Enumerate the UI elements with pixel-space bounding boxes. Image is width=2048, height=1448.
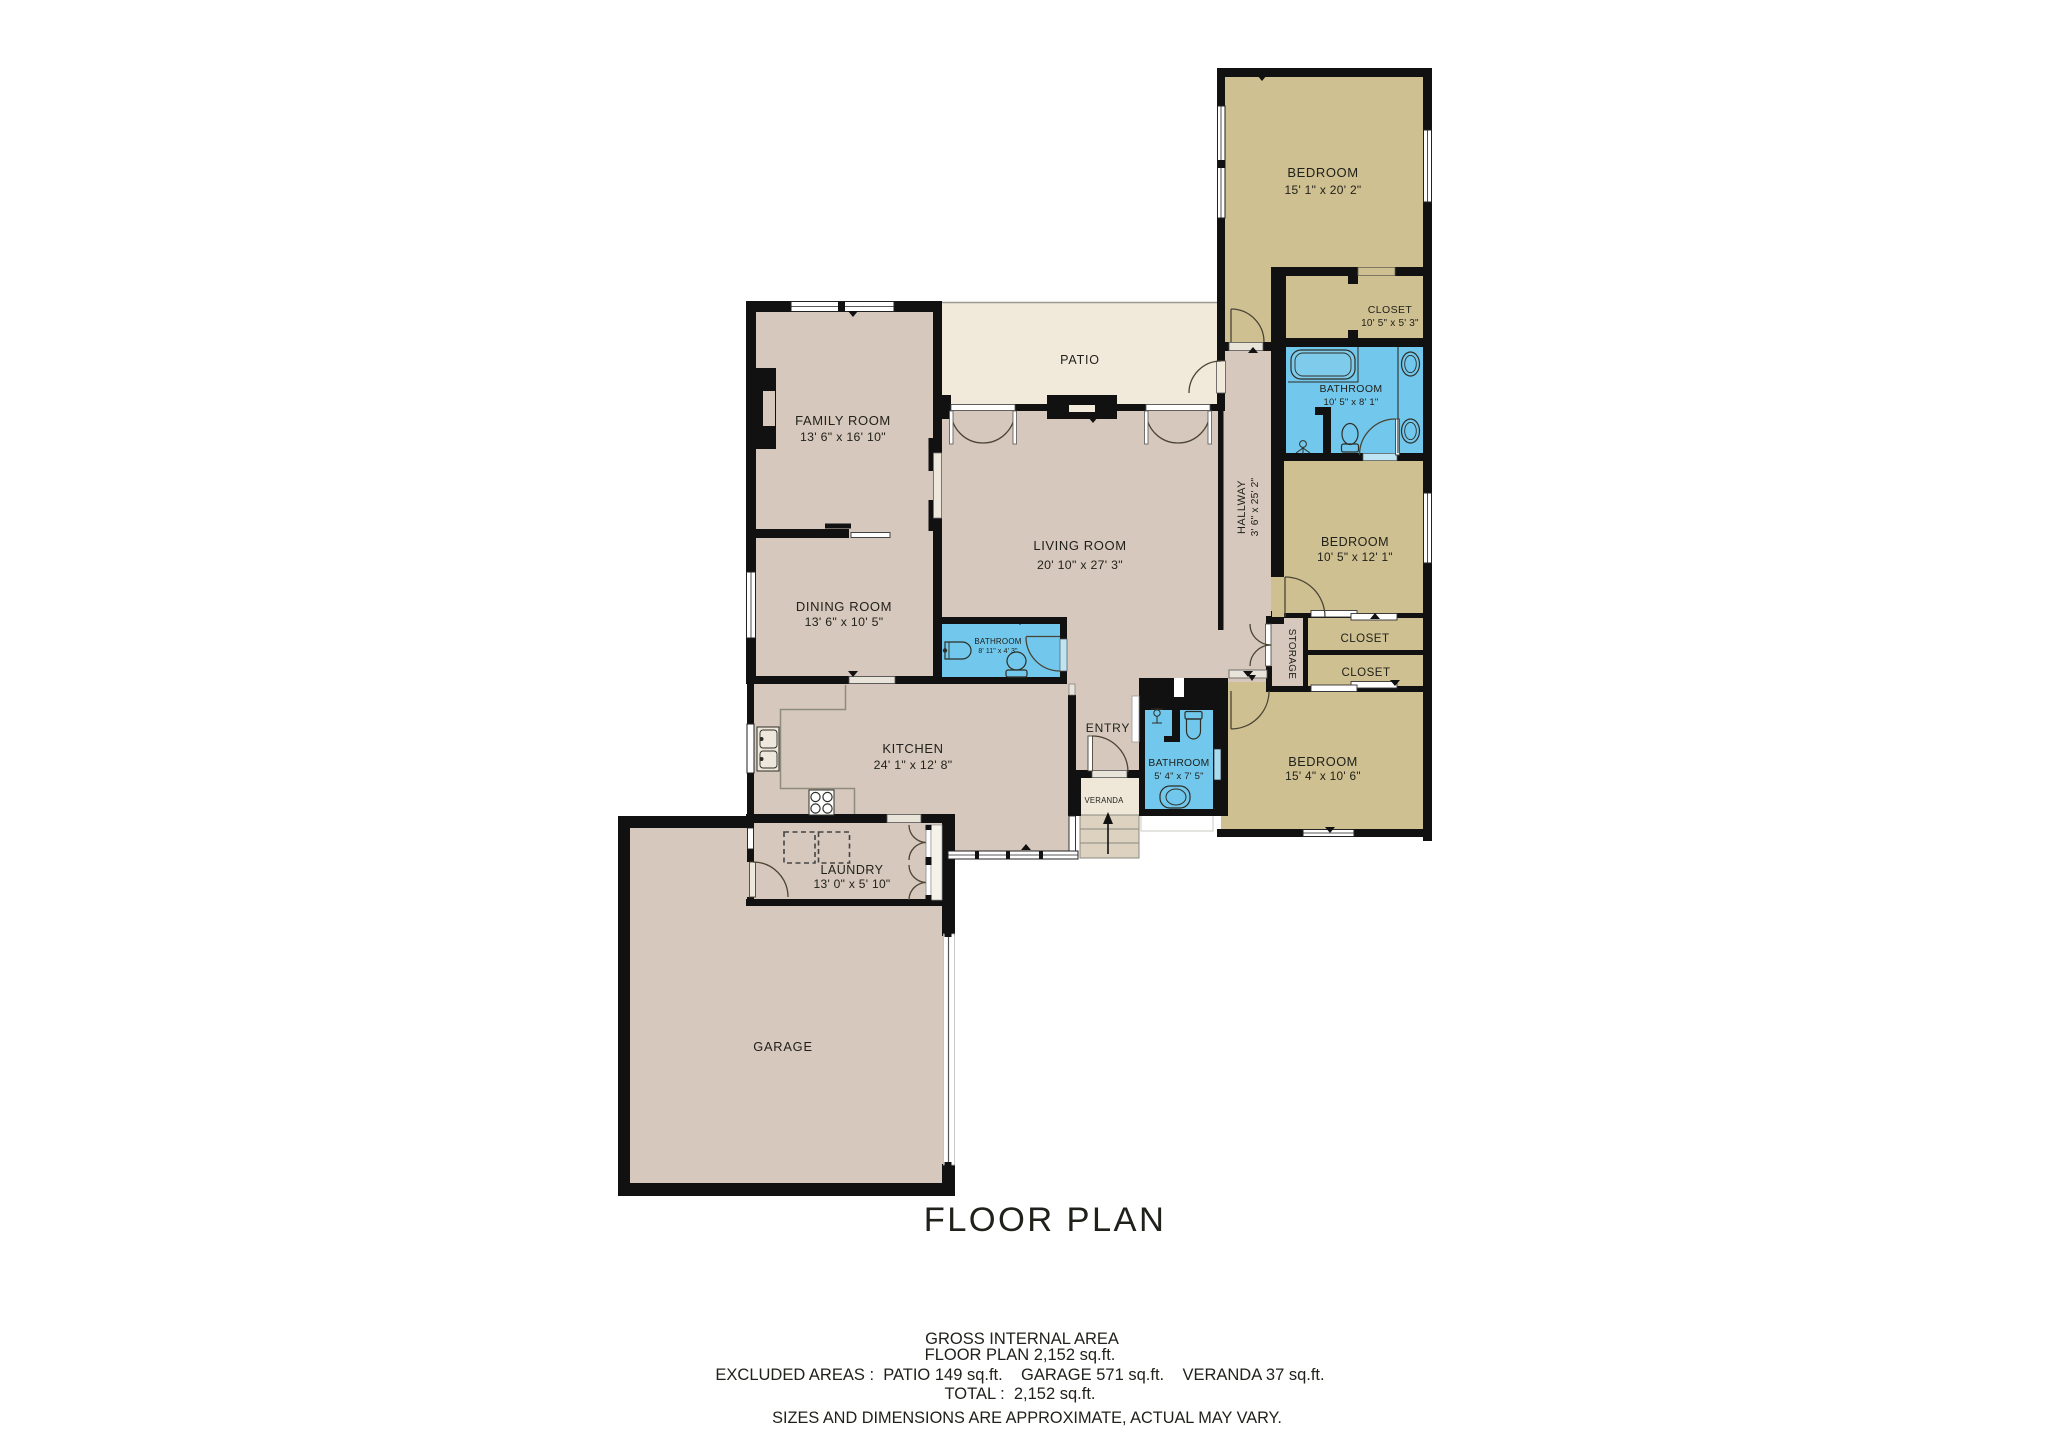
- svg-text:SIZES AND DIMENSIONS ARE APPRO: SIZES AND DIMENSIONS ARE APPROXIMATE, AC…: [772, 1409, 1282, 1427]
- svg-text:CLOSET: CLOSET: [1341, 667, 1390, 679]
- svg-text:13' 6" x 10' 5": 13' 6" x 10' 5": [805, 615, 884, 629]
- svg-text:BATHROOM: BATHROOM: [1319, 383, 1382, 395]
- svg-text:BEDROOM: BEDROOM: [1288, 754, 1358, 769]
- svg-text:GARAGE: GARAGE: [753, 1039, 813, 1054]
- svg-text:10' 5" x 8' 1": 10' 5" x 8' 1": [1324, 397, 1379, 408]
- svg-text:DINING ROOM: DINING ROOM: [796, 599, 892, 614]
- svg-text:FLOOR PLAN: FLOOR PLAN: [924, 1201, 1167, 1239]
- svg-text:13' 0" x 5' 10": 13' 0" x 5' 10": [814, 877, 891, 891]
- svg-text:VERANDA: VERANDA: [1084, 796, 1124, 805]
- svg-text:ENTRY: ENTRY: [1086, 721, 1130, 735]
- svg-text:TOTAL : 2,152 sq.ft.: TOTAL : 2,152 sq.ft.: [944, 1385, 1095, 1403]
- svg-text:BEDROOM: BEDROOM: [1321, 535, 1389, 549]
- svg-text:BATHROOM: BATHROOM: [1148, 758, 1209, 769]
- svg-text:HALLWAY: HALLWAY: [1236, 480, 1248, 534]
- svg-text:15' 4" x 10' 6": 15' 4" x 10' 6": [1285, 769, 1361, 783]
- svg-text:3' 6" x 25' 2": 3' 6" x 25' 2": [1250, 477, 1261, 536]
- svg-text:15' 1" x 20' 2": 15' 1" x 20' 2": [1285, 183, 1362, 197]
- svg-text:5' 4" x 7' 5": 5' 4" x 7' 5": [1154, 771, 1203, 782]
- svg-text:CLOSET: CLOSET: [1368, 304, 1413, 316]
- svg-text:BEDROOM: BEDROOM: [1287, 165, 1358, 180]
- svg-text:24' 1" x 12' 8": 24' 1" x 12' 8": [874, 758, 953, 772]
- svg-text:PATIO: PATIO: [1060, 353, 1100, 367]
- svg-text:CLOSET: CLOSET: [1340, 633, 1389, 645]
- svg-text:BATHROOM: BATHROOM: [974, 637, 1021, 646]
- svg-text:STORAGE: STORAGE: [1286, 629, 1297, 680]
- svg-text:LAUNDRY: LAUNDRY: [820, 863, 883, 877]
- svg-text:FLOOR PLAN 2,152 sq.ft.: FLOOR PLAN 2,152 sq.ft.: [925, 1346, 1116, 1364]
- svg-text:10' 5" x 12' 1": 10' 5" x 12' 1": [1317, 550, 1393, 564]
- svg-text:8' 11" x 4' 3": 8' 11" x 4' 3": [978, 648, 1018, 655]
- svg-text:KITCHEN: KITCHEN: [882, 741, 943, 756]
- svg-text:EXCLUDED AREAS : PATIO 149 sq: EXCLUDED AREAS : PATIO 149 sq.ft. GARAGE…: [715, 1366, 1324, 1384]
- svg-text:LIVING ROOM: LIVING ROOM: [1033, 538, 1126, 553]
- svg-text:FAMILY ROOM: FAMILY ROOM: [795, 413, 891, 428]
- svg-text:13' 6" x 16' 10": 13' 6" x 16' 10": [800, 430, 886, 444]
- svg-text:10' 5" x 5' 3": 10' 5" x 5' 3": [1361, 318, 1419, 329]
- svg-text:20' 10" x 27' 3": 20' 10" x 27' 3": [1037, 558, 1123, 572]
